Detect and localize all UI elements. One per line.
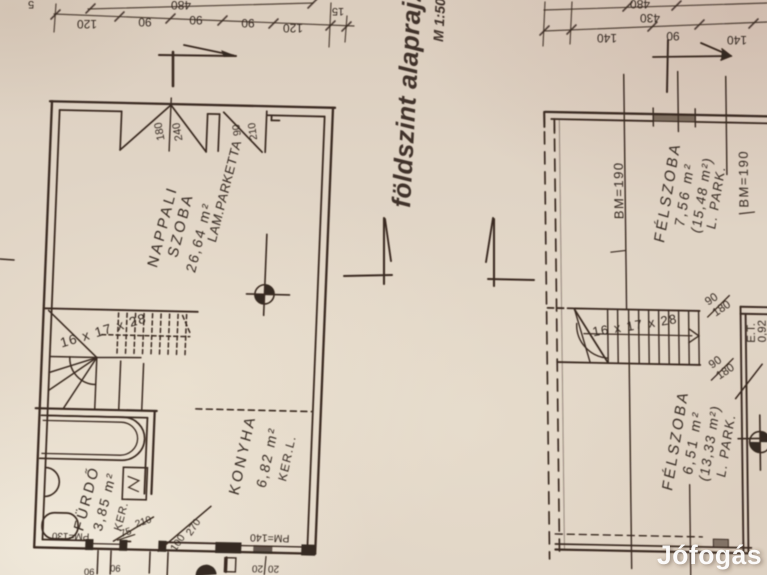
svg-text:480: 480 bbox=[171, 0, 191, 12]
svg-text:0,92: 0,92 bbox=[757, 320, 767, 343]
svg-text:120: 120 bbox=[77, 17, 97, 31]
svg-text:PM=140: PM=140 bbox=[250, 531, 290, 544]
svg-text:480: 480 bbox=[630, 0, 650, 11]
svg-text:120: 120 bbox=[283, 21, 303, 35]
svg-text:90: 90 bbox=[84, 565, 95, 575]
svg-text:5: 5 bbox=[28, 0, 34, 10]
svg-text:15: 15 bbox=[332, 5, 344, 17]
svg-text:M 1:50: M 1:50 bbox=[430, 0, 448, 42]
svg-text:90: 90 bbox=[110, 562, 121, 573]
svg-text:BM=190: BM=190 bbox=[611, 161, 627, 219]
svg-text:20: 20 bbox=[267, 563, 279, 574]
svg-text:BM=190: BM=190 bbox=[736, 150, 752, 208]
svg-text:90: 90 bbox=[230, 123, 243, 137]
svg-text:140: 140 bbox=[727, 33, 747, 47]
svg-text:430: 430 bbox=[640, 11, 660, 25]
svg-text:90: 90 bbox=[138, 15, 152, 29]
svg-text:Jófogás: Jófogás bbox=[657, 540, 762, 570]
svg-text:210: 210 bbox=[246, 122, 260, 141]
svg-text:90: 90 bbox=[189, 13, 203, 27]
svg-text:20: 20 bbox=[251, 562, 263, 573]
svg-text:90: 90 bbox=[241, 16, 255, 30]
svg-text:140: 140 bbox=[597, 31, 617, 45]
